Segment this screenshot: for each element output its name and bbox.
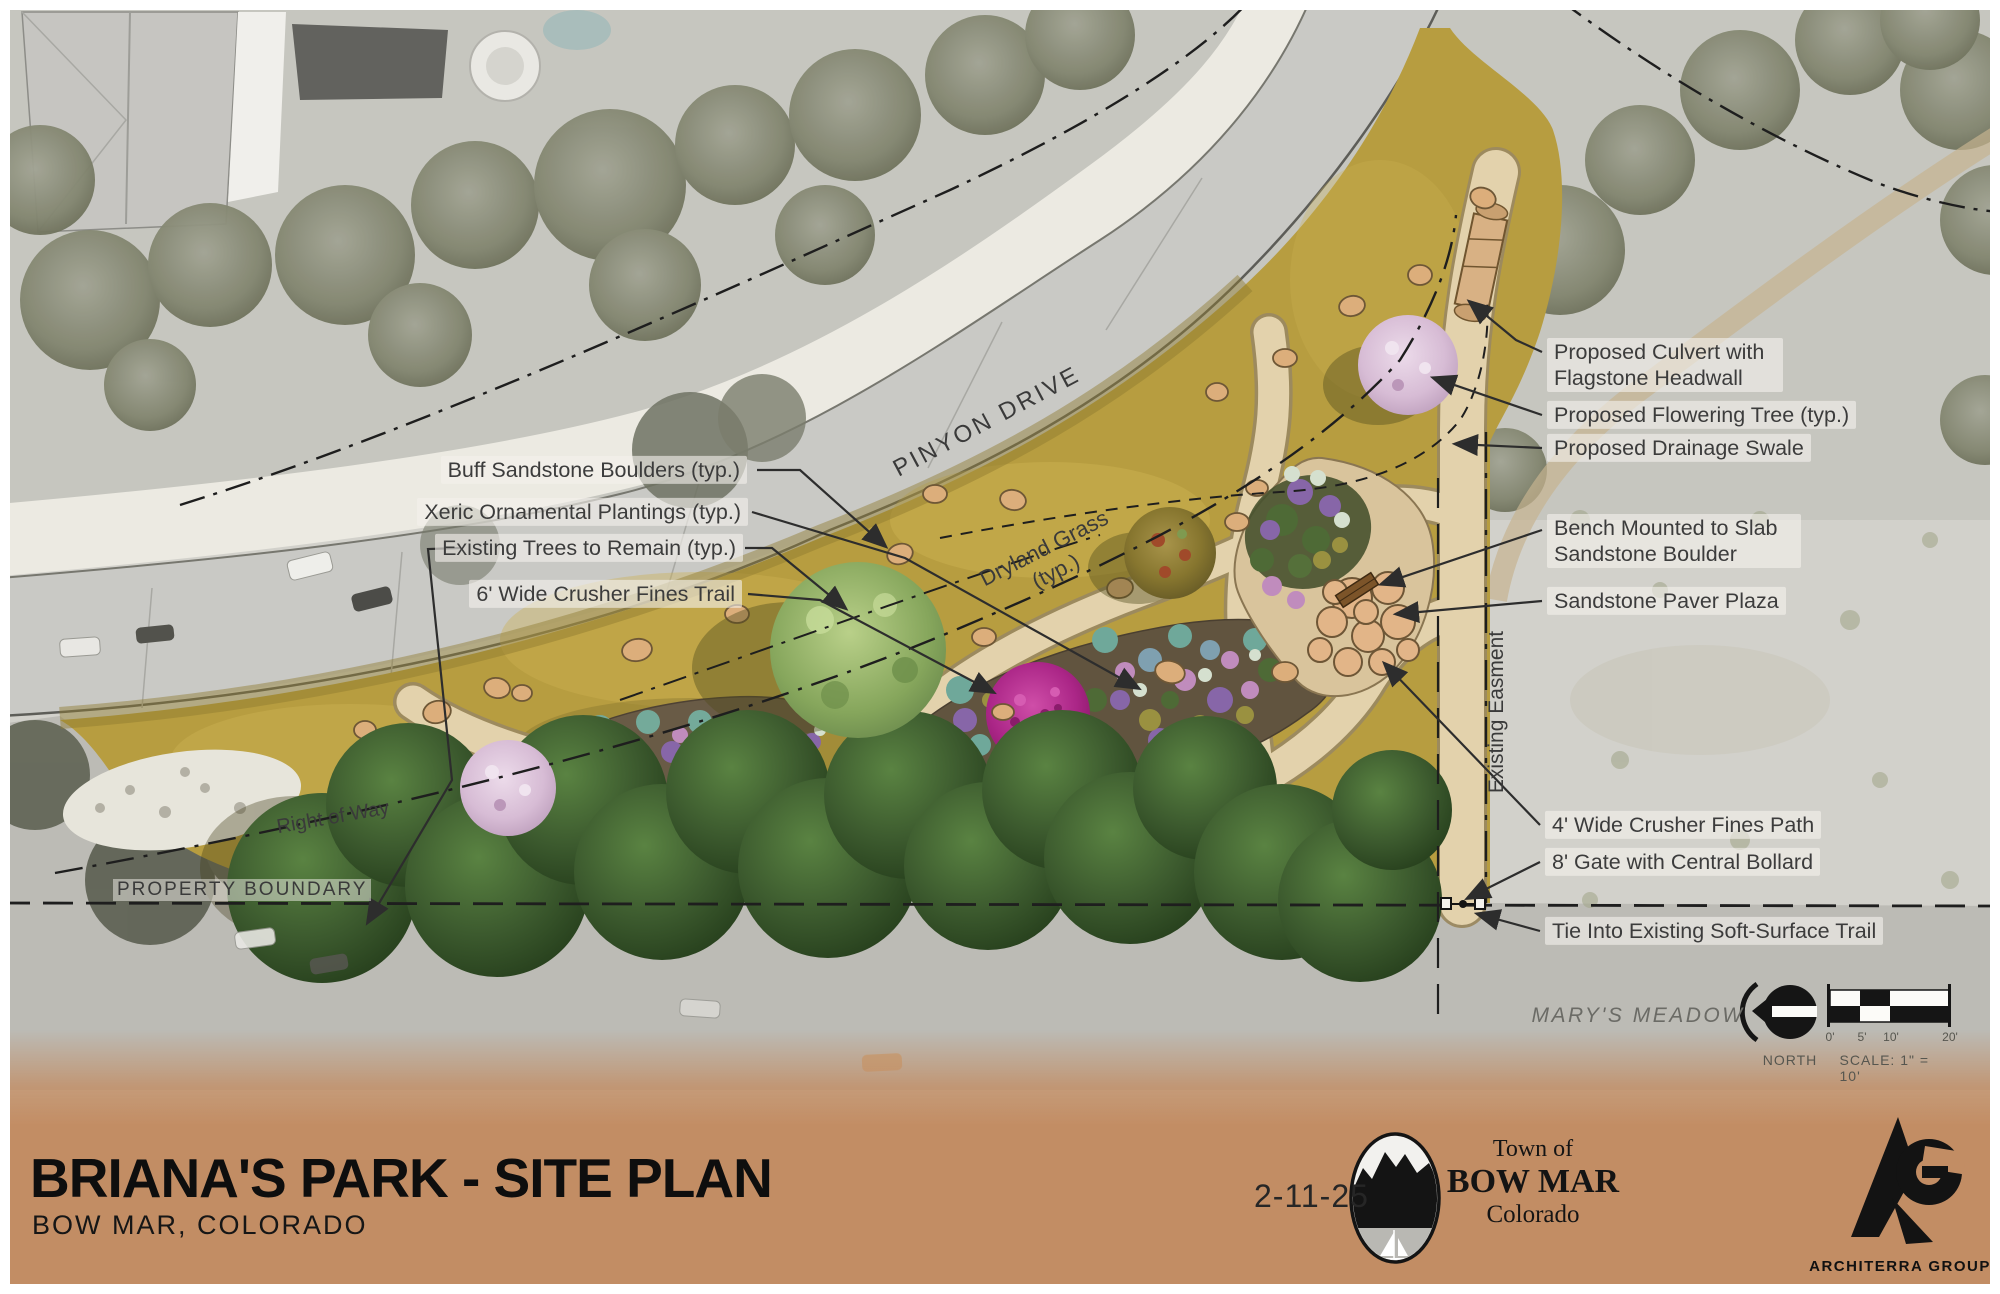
callout-proposed-culvert: Proposed Culvert with Flagstone Headwall	[1547, 338, 1783, 392]
flowering-tree-west	[460, 740, 556, 836]
town-logo-text: Town of BOW MAR Colorado	[1438, 1136, 1628, 1229]
sheet-title: BRIANA'S PARK - SITE PLAN	[30, 1146, 772, 1210]
callout-proposed-flowering-tree: Proposed Flowering Tree (typ.)	[1547, 401, 1856, 429]
scale-tick-20: 20'	[1938, 1030, 1962, 1044]
town-logo-state: Colorado	[1486, 1201, 1579, 1228]
scale-tick-5: 5'	[1850, 1030, 1874, 1044]
town-logo-line1: Town of	[1438, 1136, 1628, 1163]
callout-tie-into-trail: Tie Into Existing Soft-Surface Trail	[1545, 917, 1883, 945]
callout-buff-sandstone-boulders: Buff Sandstone Boulders (typ.)	[441, 456, 747, 484]
existing-easement-label: Existing Easment	[1485, 631, 1509, 793]
sheet-date: 2-11-25	[1254, 1178, 1369, 1215]
callout-gate-bollard: 8' Gate with Central Bollard	[1545, 848, 1820, 876]
north-label: NORTH	[1763, 1052, 1818, 1068]
scale-bar	[1827, 984, 1951, 1027]
sheet-subtitle: BOW MAR, COLORADO	[32, 1210, 368, 1241]
marys-meadow-label: MARY'S MEADOW	[1531, 1004, 1744, 1028]
callout-xeric-plantings: Xeric Ornamental Plantings (typ.)	[417, 498, 748, 526]
property-boundary-label: PROPERTY BOUNDARY	[113, 879, 371, 901]
existing-deciduous-tree	[770, 562, 946, 738]
site-plan-sheet: Buff Sandstone Boulders (typ.) Xeric Orn…	[0, 0, 2000, 1294]
callout-crusher-fines-trail: 6' Wide Crusher Fines Trail	[469, 580, 742, 608]
scale-label: SCALE: 1" = 10'	[1840, 1052, 1947, 1084]
callout-bench-boulder: Bench Mounted to Slab Sandstone Boulder	[1547, 514, 1801, 568]
town-logo-name: BOW MAR	[1447, 1163, 1619, 1200]
scale-tick-0: 0'	[1818, 1030, 1842, 1044]
orange-shrub-tree	[1124, 507, 1216, 599]
firm-name: ARCHITERRA GROUP	[1800, 1258, 2000, 1275]
callout-sandstone-paver-plaza: Sandstone Paver Plaza	[1547, 587, 1786, 615]
flowering-tree-northeast	[1358, 315, 1458, 415]
plan-drawing	[0, 0, 2000, 1294]
callout-proposed-drainage-swale: Proposed Drainage Swale	[1547, 434, 1811, 462]
callout-existing-trees: Existing Trees to Remain (typ.)	[435, 534, 743, 562]
scale-tick-10: 10'	[1879, 1030, 1903, 1044]
callout-crusher-fines-path: 4' Wide Crusher Fines Path	[1545, 811, 1821, 839]
